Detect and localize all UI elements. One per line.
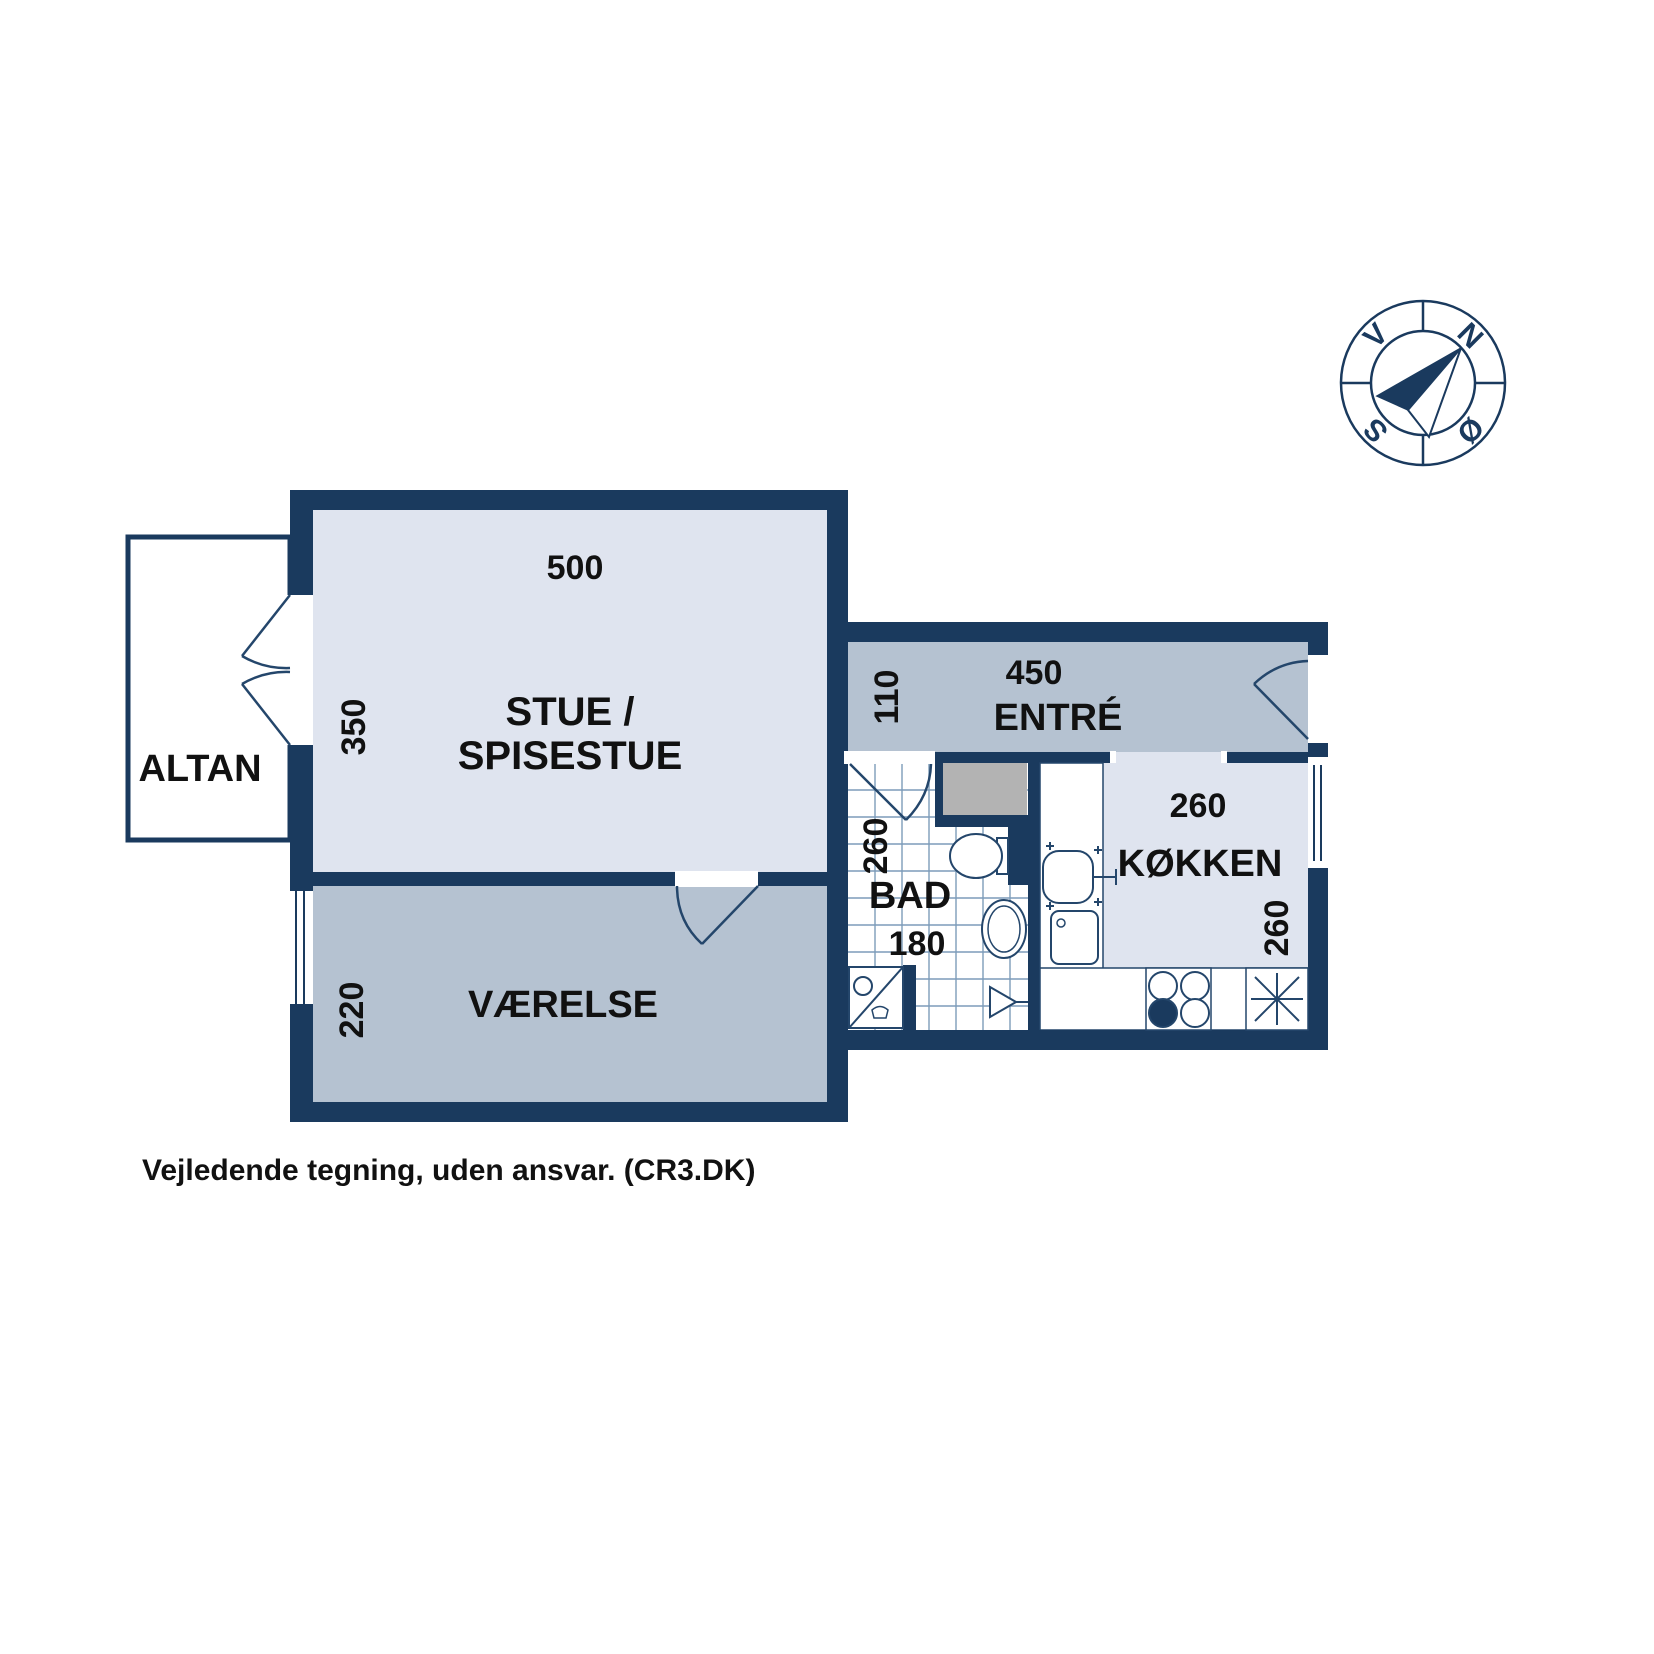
- bad-label: BAD: [869, 875, 951, 917]
- passage-jamb-right: [1221, 751, 1227, 764]
- altan-label: ALTAN: [138, 748, 261, 790]
- bad-height-label: 260: [857, 818, 895, 875]
- kokken-label: KØKKEN: [1118, 843, 1283, 885]
- entre-top-wall: [842, 622, 1328, 642]
- entre-height-label: 110: [868, 670, 906, 725]
- compass-n: N: [1451, 317, 1490, 356]
- bad-width-label: 180: [889, 925, 946, 963]
- kokken-height-label: 260: [1258, 900, 1296, 957]
- kokken-window: [1308, 757, 1328, 868]
- compass-rose: N Ø S V: [1341, 301, 1505, 465]
- dishwasher-icon: [1051, 911, 1098, 964]
- vaerelse-label: VÆRELSE: [468, 984, 658, 1026]
- toilet-icon: [950, 834, 1008, 878]
- vaerelse-height-label: 220: [333, 982, 371, 1039]
- entre-width-label: 450: [1006, 654, 1063, 692]
- stue-width-label: 500: [547, 549, 604, 587]
- room-altan: [128, 537, 290, 840]
- closet-fill: [943, 763, 1027, 815]
- compass-e: Ø: [1450, 410, 1490, 450]
- bad-sink-icon: [982, 900, 1026, 958]
- entre-label: ENTRÉ: [994, 695, 1123, 739]
- stove-icon: [1146, 968, 1211, 1030]
- soap-dish-icon: [872, 1007, 888, 1019]
- floorplan-canvas: N Ø S V 500 350 STUE / SPISESTUE ALTAN V…: [0, 0, 1654, 1654]
- shower-stub-wall: [903, 965, 916, 1030]
- shower-icon: [849, 967, 903, 1028]
- footer-note: Vejledende tegning, uden ansvar. (CR3.DK…: [142, 1154, 755, 1187]
- bad-kokken-divider-wall: [1028, 752, 1040, 1030]
- stue-label-line1: STUE /: [506, 690, 635, 734]
- wing-bottom-wall: [848, 1030, 1328, 1050]
- vaerelse-window: [288, 891, 313, 1004]
- entre-bottom-wall-right: [1222, 752, 1308, 763]
- passage-jamb-left: [1110, 751, 1116, 764]
- compass-s: S: [1357, 411, 1394, 448]
- kokken-width-label: 260: [1170, 787, 1227, 825]
- kitchen-passage: [1115, 752, 1222, 763]
- compass-v: V: [1357, 317, 1394, 354]
- stue-height-label: 350: [335, 699, 373, 756]
- toilet-stub-wall: [1008, 815, 1028, 885]
- altan-outline: [128, 537, 290, 840]
- fridge-icon: [1246, 968, 1308, 1030]
- floorplan-page: N Ø S V 500 350 STUE / SPISESTUE ALTAN V…: [0, 0, 1654, 1654]
- stue-label-line2: SPISESTUE: [458, 734, 683, 778]
